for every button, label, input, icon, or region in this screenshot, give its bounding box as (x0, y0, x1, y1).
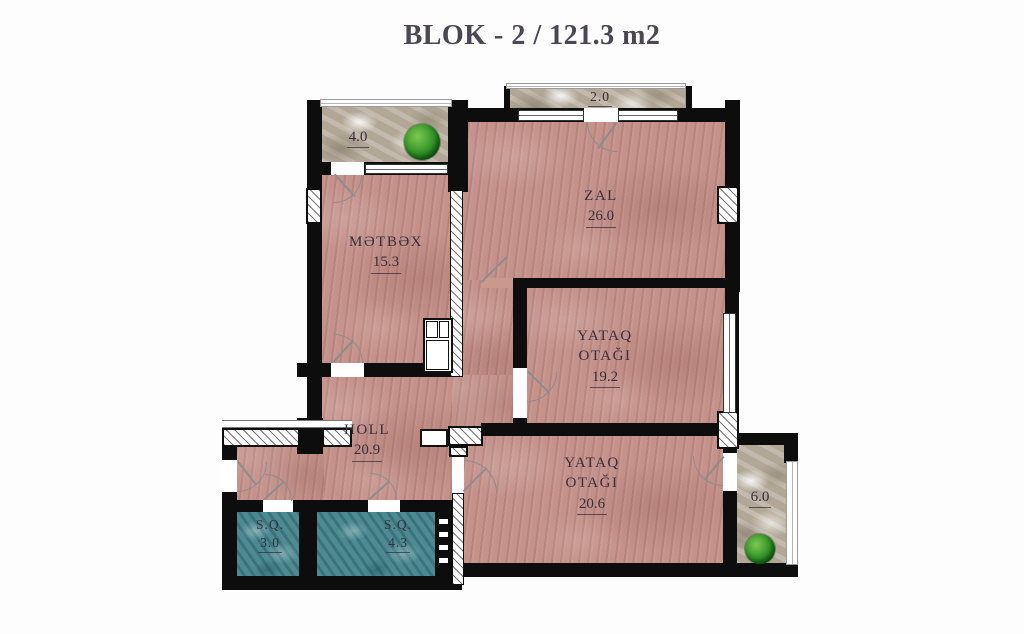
door-frame-hatched (448, 426, 483, 446)
wall (686, 86, 692, 118)
room-area: 3.0 (258, 534, 282, 553)
door-gap (481, 278, 513, 288)
wall (504, 86, 510, 118)
room-area: 4.0 (347, 127, 370, 148)
room-label-sq4: S.Q. 4.3 (364, 516, 432, 553)
cabinet (420, 429, 448, 447)
room-area: 20.9 (352, 440, 382, 461)
radiator (439, 519, 448, 571)
wall (723, 563, 798, 577)
room-area: 6.0 (749, 487, 772, 508)
room-area: 20.6 (577, 494, 607, 515)
room-name: ZAL (541, 186, 661, 206)
room-label-sq3: S.Q. 3.0 (237, 516, 303, 553)
room-label-balcony-right: 6.0 (729, 487, 791, 508)
wall (452, 563, 738, 577)
window-hatched (717, 411, 739, 449)
room-name: YATAQ OTAĞI (557, 326, 653, 367)
room-label-metbex: MƏTBƏX 15.3 (316, 232, 456, 274)
window (618, 110, 678, 121)
door-gap (331, 162, 364, 175)
kitchen-stove (426, 340, 449, 370)
entrance-door-gap (222, 460, 237, 492)
wall (513, 278, 740, 288)
wall (481, 423, 725, 436)
window-hatched (306, 188, 322, 224)
floor-plan: BLOK - 2 / 121.3 m2 (0, 0, 1024, 634)
window (365, 164, 448, 174)
room-area: 4.3 (386, 534, 410, 553)
room-name: S.Q. (364, 516, 432, 534)
room-area: 19.2 (590, 367, 620, 388)
kitchen-sink (439, 321, 449, 338)
door-gap (368, 500, 400, 512)
room-label-yataq19: YATAQ OTAĞI 19.2 (557, 326, 653, 388)
door-gap (513, 368, 527, 418)
room-label-yataq20: YATAQ OTAĞI 20.6 (544, 453, 640, 515)
room-area: 26.0 (586, 206, 616, 227)
window-hatched (717, 186, 739, 224)
door-gap (263, 500, 293, 512)
door-gap (452, 457, 464, 493)
wall (222, 576, 462, 590)
door-gap (584, 108, 618, 122)
balcony-railing (320, 99, 452, 107)
room-name: S.Q. (237, 516, 303, 534)
door-frame-hatched (449, 446, 468, 457)
shaft-wall-hatched (452, 493, 464, 585)
room-label-balcony-zal: 2.0 (570, 88, 630, 107)
room-label-holl: HOLL 20.9 (317, 420, 417, 462)
plan-title: BLOK - 2 / 121.3 m2 (0, 20, 1024, 52)
room-name: YATAQ OTAĞI (544, 453, 640, 494)
stair-wall-hatched (222, 428, 300, 447)
room-name: HOLL (317, 420, 417, 440)
door-gap (723, 453, 737, 491)
room-name: MƏTBƏX (316, 232, 456, 252)
room-area: 15.3 (371, 252, 401, 273)
room-label-zal: ZAL 26.0 (541, 186, 661, 228)
door-gap (331, 363, 364, 377)
kitchen-sink (426, 321, 438, 338)
plant-icon (745, 534, 775, 564)
room-label-balcony-top: 4.0 (328, 127, 388, 148)
window (723, 313, 736, 413)
kitchen-counter (423, 318, 453, 373)
wall (784, 433, 798, 463)
room-area: 2.0 (588, 88, 612, 107)
plant-icon (404, 124, 440, 160)
balcony-railing (786, 461, 798, 565)
window (518, 110, 584, 121)
hall-corridor-floor (452, 375, 518, 430)
